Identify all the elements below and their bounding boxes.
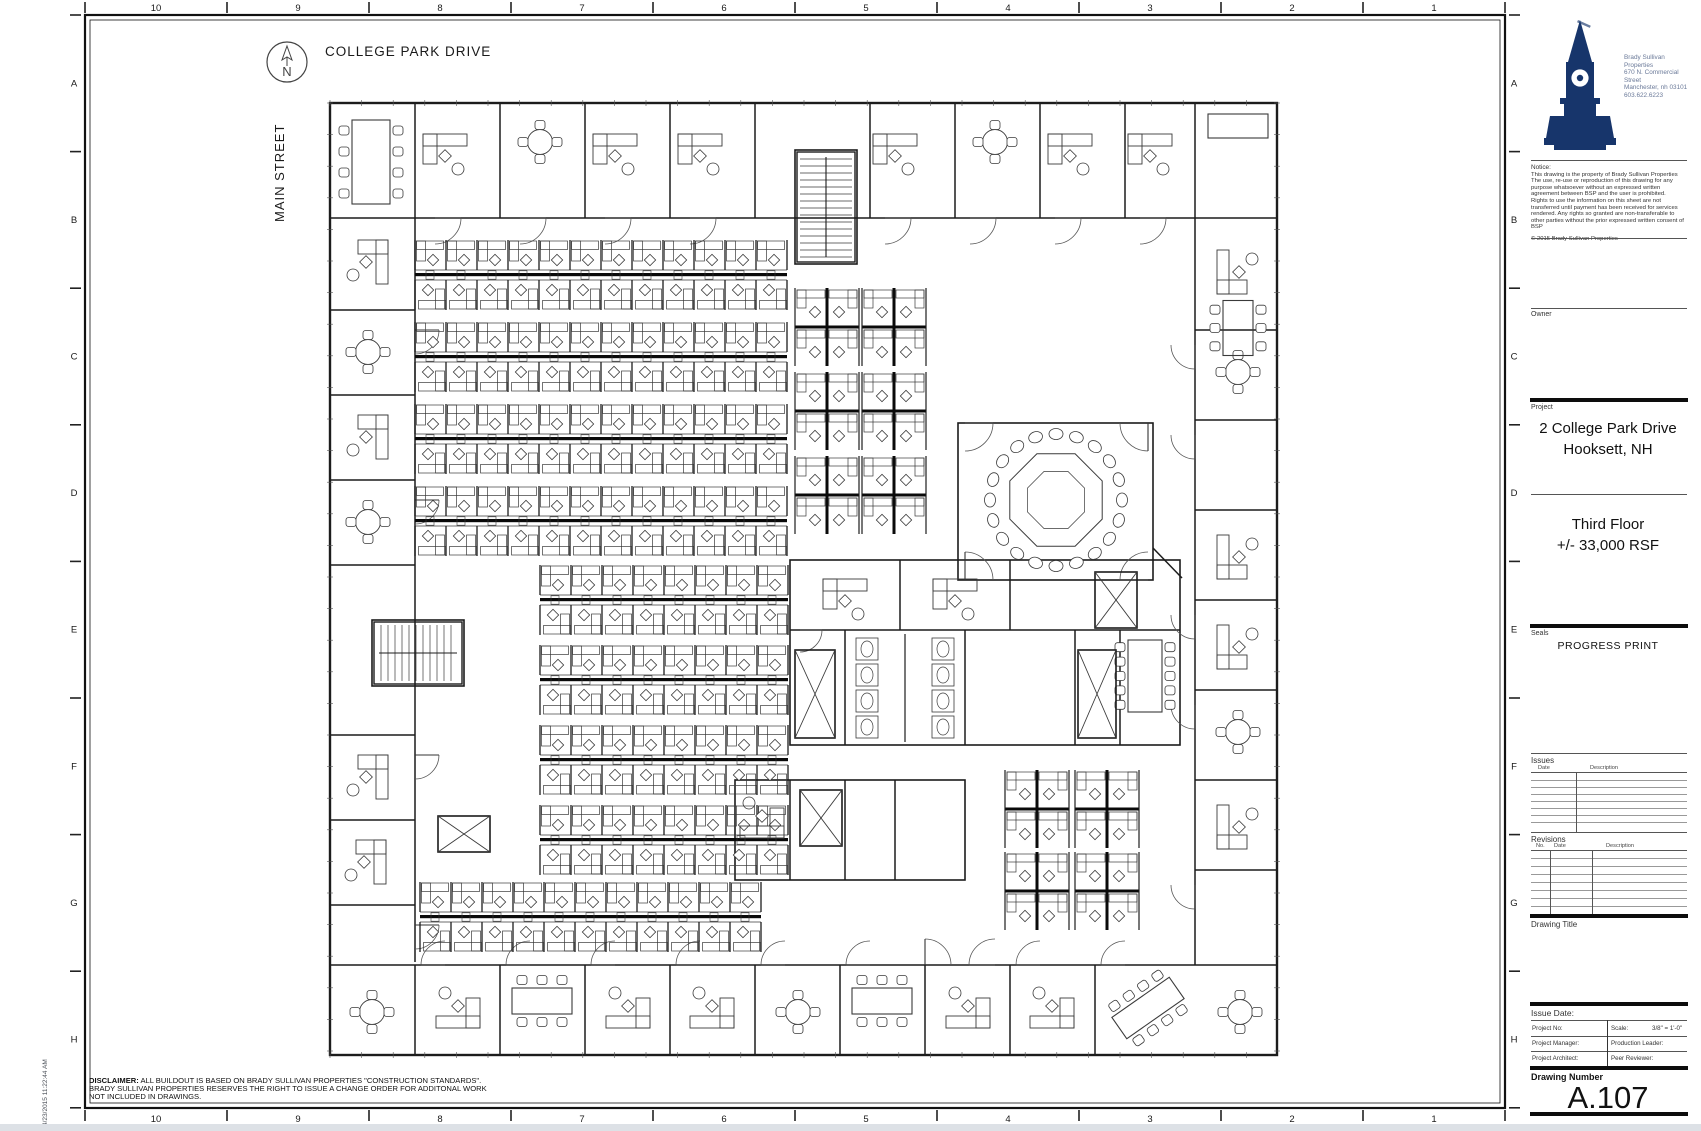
field-project-no: Project No: bbox=[1532, 1025, 1563, 1032]
svg-text:10: 10 bbox=[151, 3, 162, 14]
svg-text:N: N bbox=[282, 64, 291, 79]
svg-text:F: F bbox=[1511, 761, 1517, 772]
svg-text:F: F bbox=[71, 761, 77, 772]
floor-plan-drawing: 1010998877665544332211AABBCCDDEEFFGGHHN bbox=[0, 0, 1701, 1131]
street-label-left: MAIN STREET bbox=[272, 124, 287, 222]
company-address1: 670 N. Commercial Street bbox=[1624, 69, 1692, 84]
revisions-col-no: No. bbox=[1536, 843, 1545, 849]
notice-copyright: © 2015 Brady Sullivan Properties bbox=[1531, 236, 1687, 243]
svg-text:B: B bbox=[1511, 215, 1517, 226]
revisions-col-date: Date bbox=[1554, 843, 1566, 849]
disclaimer-line3: NOT INCLUDED IN DRAWINGS. bbox=[89, 1092, 201, 1101]
progress-print-stamp: PROGRESS PRINT bbox=[1528, 640, 1688, 652]
seals-label: Seals bbox=[1531, 630, 1549, 637]
company-name: Brady Sullivan Properties bbox=[1624, 54, 1692, 69]
notice-heading: Notice: bbox=[1531, 165, 1687, 172]
company-info: Brady Sullivan Properties 670 N. Commerc… bbox=[1624, 54, 1692, 100]
street-label-top: COLLEGE PARK DRIVE bbox=[325, 44, 491, 59]
project-address-line2: Hooksett, NH bbox=[1528, 441, 1688, 458]
svg-text:G: G bbox=[1510, 898, 1517, 909]
notice-block: Notice: This drawing is the property of … bbox=[1531, 165, 1687, 243]
field-project-architect: Project Architect: bbox=[1532, 1055, 1578, 1062]
svg-text:5: 5 bbox=[863, 3, 868, 14]
svg-text:7: 7 bbox=[579, 3, 584, 14]
drawing-sheet: 1010998877665544332211AABBCCDDEEFFGGHHN … bbox=[0, 0, 1701, 1131]
plot-timestamp: 4/23/2015 11:22:44 AM bbox=[42, 1059, 49, 1126]
svg-text:4: 4 bbox=[1005, 3, 1010, 14]
floor-title-line1: Third Floor bbox=[1528, 516, 1688, 533]
svg-text:C: C bbox=[71, 352, 78, 363]
company-phone: 603.622.6223 bbox=[1624, 92, 1692, 100]
field-production-leader: Production Leader: bbox=[1611, 1040, 1663, 1047]
issues-col-description: Description bbox=[1590, 765, 1618, 771]
svg-text:G: G bbox=[70, 898, 77, 909]
svg-text:A: A bbox=[1511, 78, 1518, 89]
north-arrow-icon: N bbox=[267, 42, 307, 82]
svg-text:E: E bbox=[71, 625, 77, 636]
floor-title-line2: +/- 33,000 RSF bbox=[1528, 537, 1688, 554]
issues-heading: Issues bbox=[1531, 756, 1554, 765]
svg-text:1: 1 bbox=[1431, 3, 1436, 14]
cubicle-quad-clusters bbox=[795, 288, 1139, 930]
svg-text:D: D bbox=[71, 488, 78, 499]
company-address2: Manchester, nh 03101 bbox=[1624, 84, 1692, 92]
svg-text:C: C bbox=[1511, 352, 1518, 363]
svg-text:6: 6 bbox=[721, 3, 726, 14]
svg-text:B: B bbox=[71, 215, 77, 226]
svg-text:H: H bbox=[1511, 1035, 1518, 1046]
cubicle-rows bbox=[415, 240, 788, 952]
brady-sullivan-clocktower-logo bbox=[1534, 18, 1622, 156]
notice-paragraph-2: Rights to use the information on this sh… bbox=[1531, 198, 1687, 231]
project-address-line1: 2 College Park Drive bbox=[1528, 420, 1688, 437]
svg-text:8: 8 bbox=[437, 3, 442, 14]
svg-text:E: E bbox=[1511, 625, 1517, 636]
drawing-title-label: Drawing Title bbox=[1531, 920, 1577, 929]
svg-text:H: H bbox=[71, 1035, 78, 1046]
svg-text:3: 3 bbox=[1147, 3, 1152, 14]
issues-col-date: Date bbox=[1538, 765, 1550, 771]
project-label: Project bbox=[1531, 404, 1553, 411]
disclaimer-note: DISCLAIMER: ALL BUILDOUT IS BASED ON BRA… bbox=[89, 1077, 509, 1102]
svg-text:2: 2 bbox=[1289, 3, 1294, 14]
title-block: Brady Sullivan Properties 670 N. Commerc… bbox=[1528, 0, 1692, 1131]
svg-text:9: 9 bbox=[295, 3, 300, 14]
notice-paragraph-1: This drawing is the property of Brady Su… bbox=[1531, 172, 1687, 198]
field-project-manager: Project Manager: bbox=[1532, 1040, 1579, 1047]
octagon-conference-table bbox=[985, 429, 1128, 572]
owner-label: Owner bbox=[1531, 311, 1552, 318]
field-scale-value: 3/8" = 1'-0" bbox=[1652, 1025, 1682, 1032]
field-peer-reviewer: Peer Reviewer: bbox=[1611, 1055, 1653, 1062]
revisions-col-description: Description bbox=[1606, 843, 1634, 849]
svg-text:D: D bbox=[1511, 488, 1518, 499]
restroom-core bbox=[856, 634, 954, 742]
field-scale-label: Scale: bbox=[1611, 1025, 1628, 1032]
issue-date-label: Issue Date: bbox=[1531, 1008, 1574, 1018]
viewer-edge-strip bbox=[0, 1124, 1701, 1131]
drawing-number: A.107 bbox=[1528, 1080, 1688, 1116]
svg-text:A: A bbox=[71, 78, 78, 89]
